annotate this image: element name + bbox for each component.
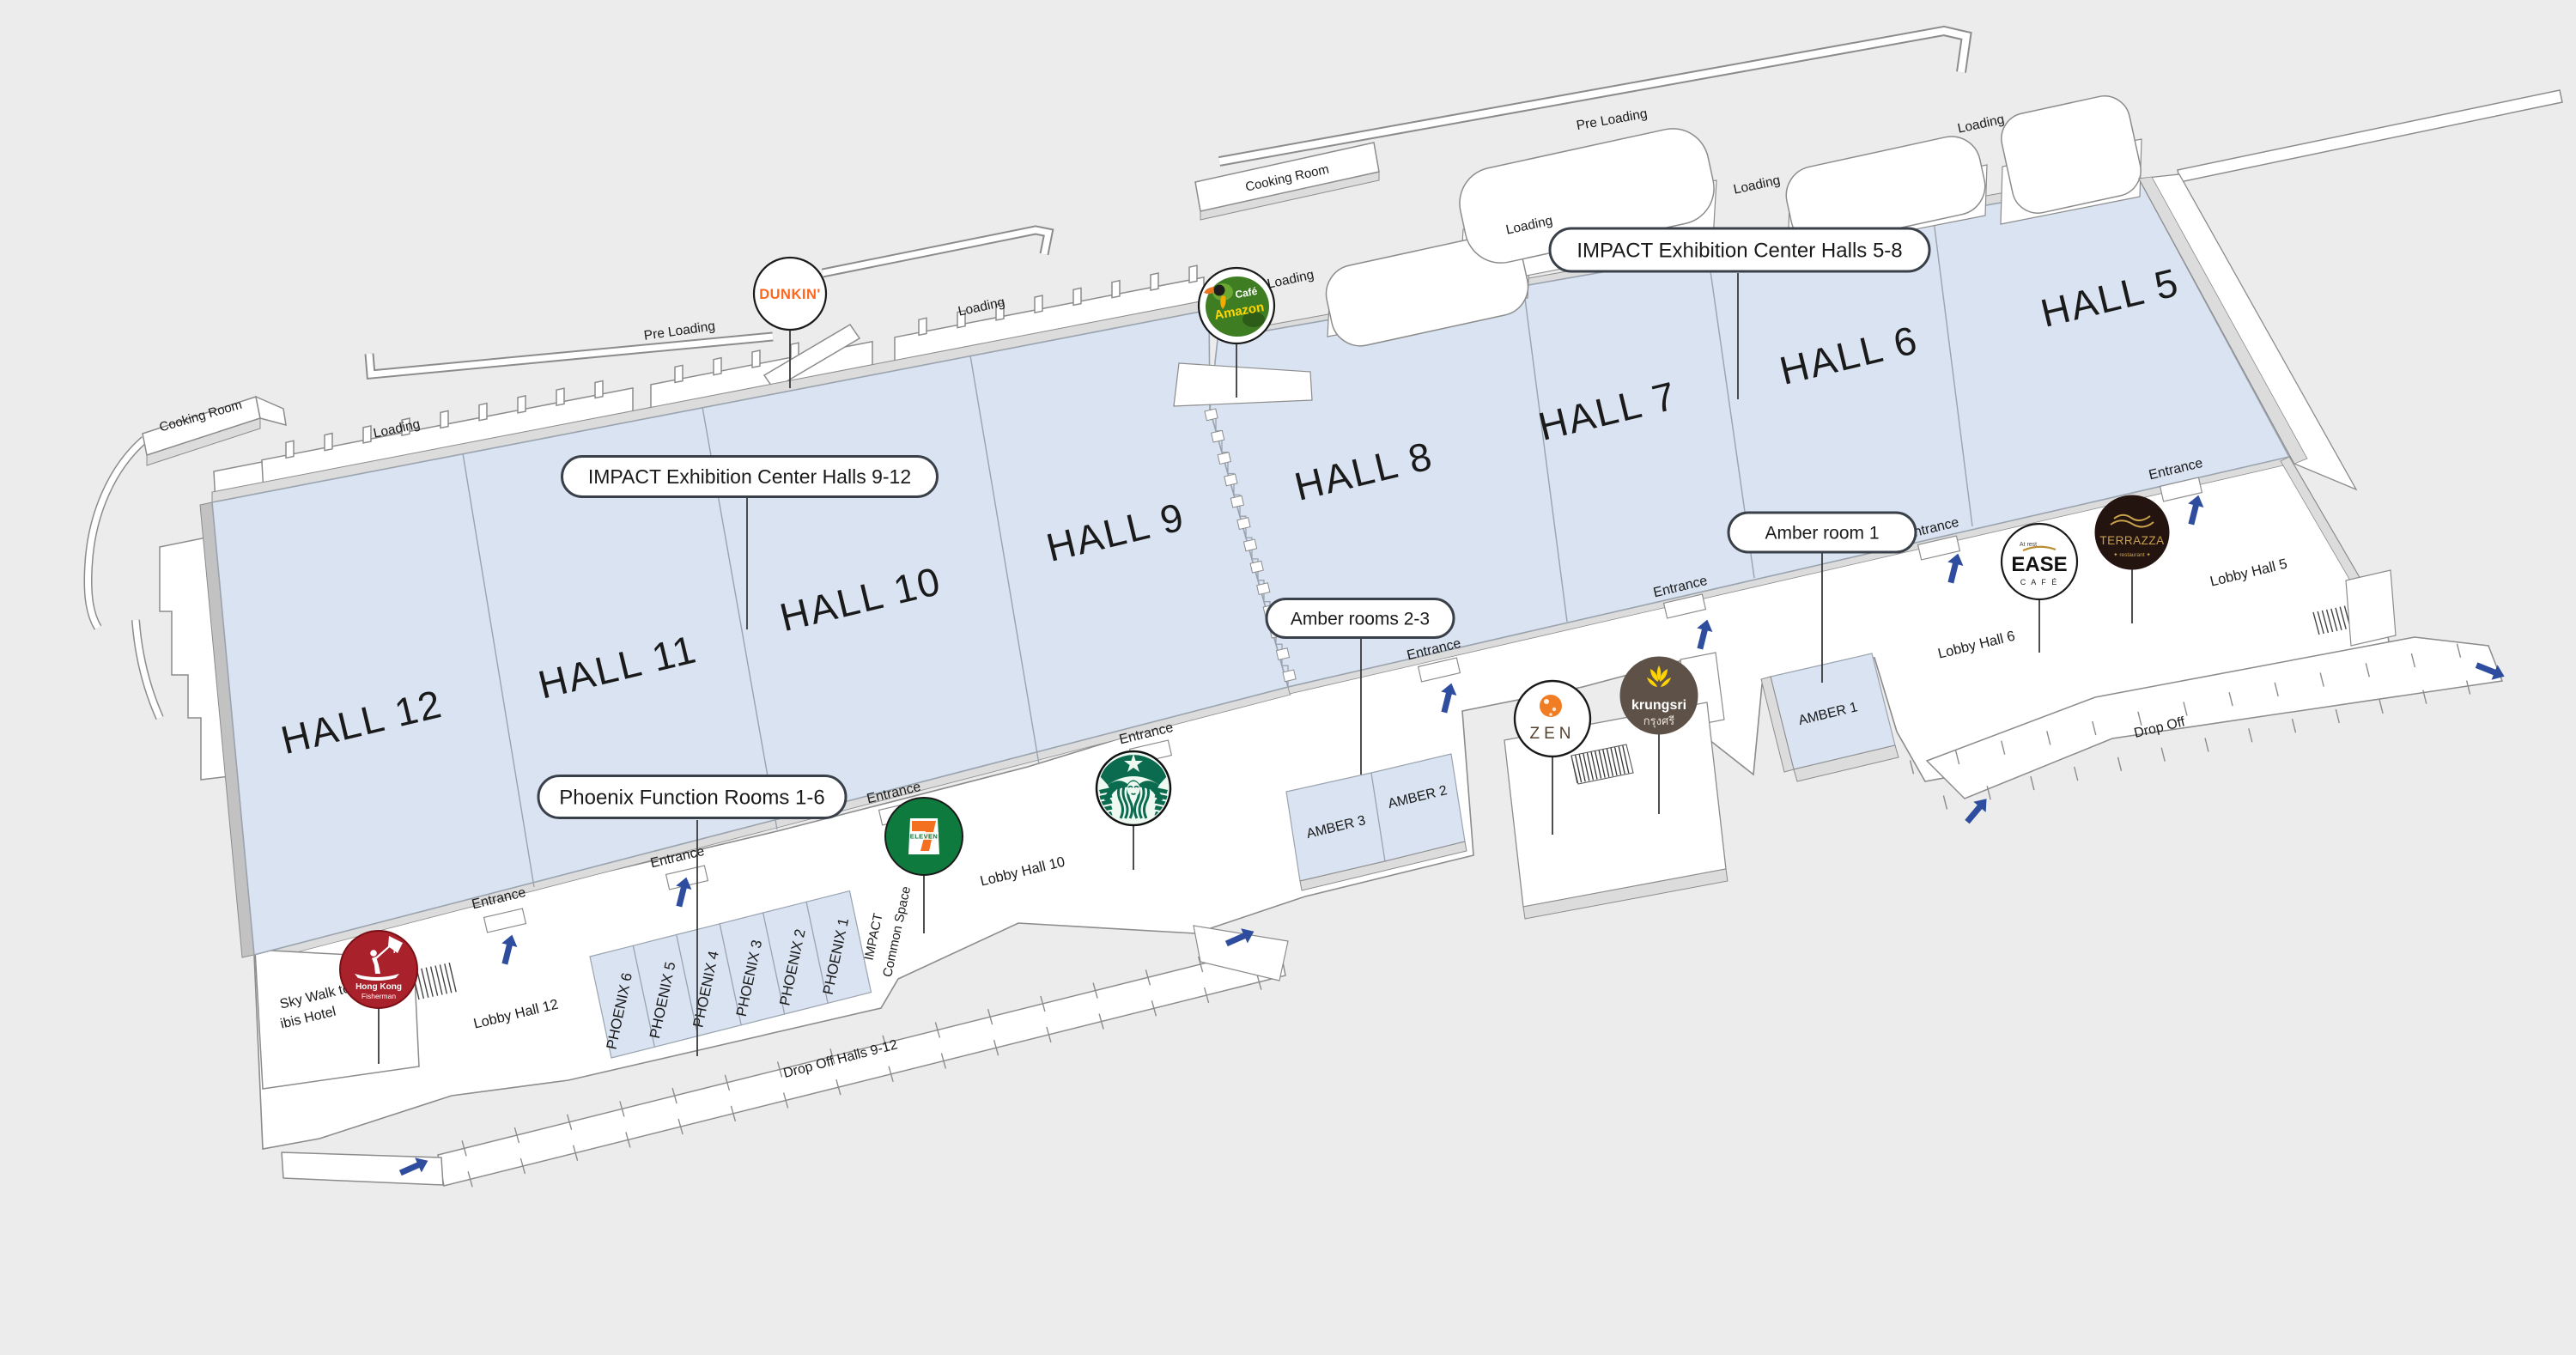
svg-text:krungsri: krungsri: [1631, 698, 1686, 713]
svg-text:Fisherman: Fisherman: [361, 992, 396, 1000]
svg-text:ZEN: ZEN: [1530, 725, 1576, 743]
svg-text:Amber room 1: Amber room 1: [1765, 523, 1879, 543]
svg-text:✦ restaurant ✦: ✦ restaurant ✦: [2113, 551, 2151, 558]
svg-text:TERRAZZA: TERRAZZA: [2099, 534, 2164, 547]
svg-text:EASE: EASE: [2011, 553, 2067, 576]
svg-text:กรุงศรี: กรุงศรี: [1643, 714, 1674, 728]
svg-text:IMPACT Exhibition Center Halls: IMPACT Exhibition Center Halls 9-12: [588, 465, 911, 488]
svg-text:Hong Kong: Hong Kong: [355, 982, 402, 992]
svg-text:DUNKIN': DUNKIN': [759, 287, 821, 302]
svg-text:C A F É: C A F É: [2020, 578, 2059, 586]
svg-text:Amber rooms 2-3: Amber rooms 2-3: [1291, 609, 1430, 629]
svg-text:ELEVEN: ELEVEN: [910, 833, 938, 841]
svg-text:IMPACT Exhibition Center Halls: IMPACT Exhibition Center Halls 5-8: [1577, 239, 1902, 262]
svg-text:Phoenix Function Rooms 1-6: Phoenix Function Rooms 1-6: [559, 786, 825, 809]
